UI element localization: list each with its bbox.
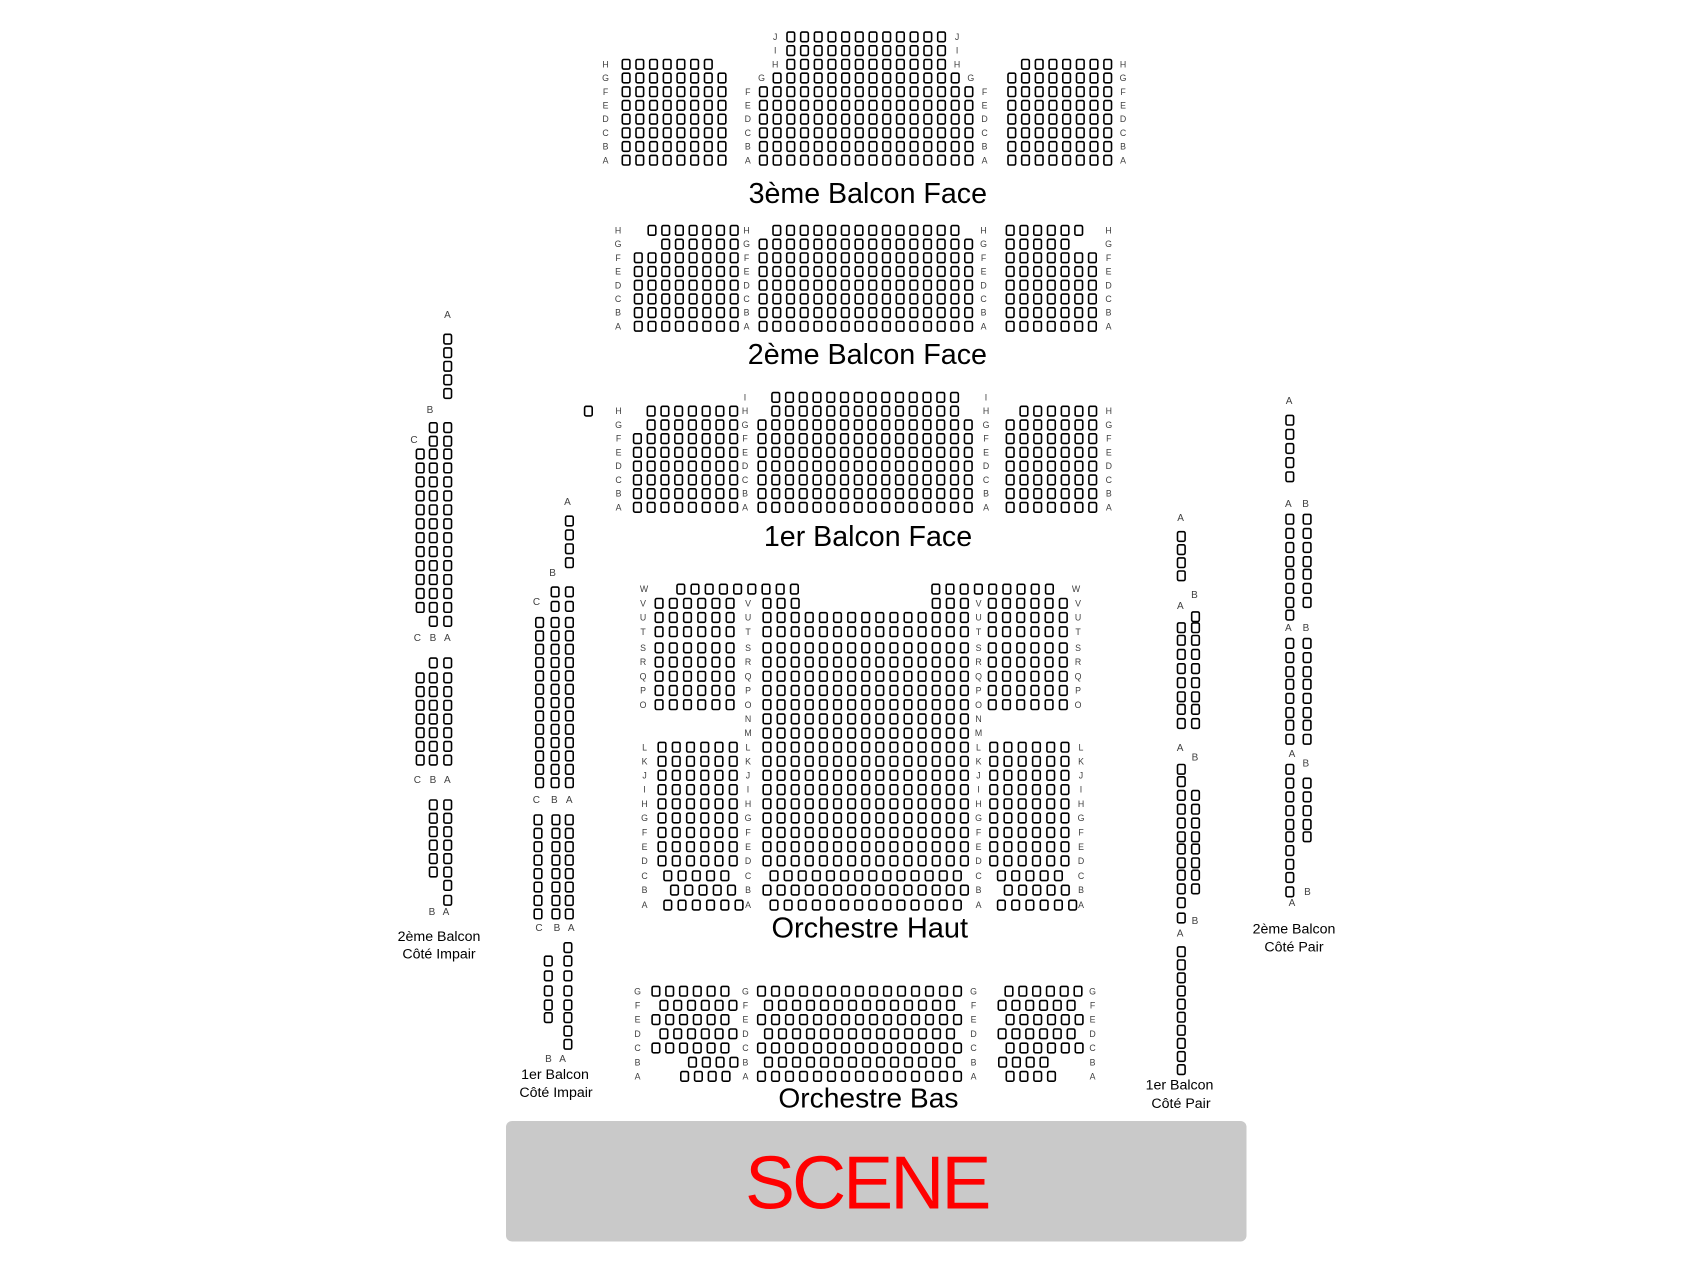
svg-text:A: A xyxy=(444,775,451,786)
svg-text:K: K xyxy=(976,756,982,766)
svg-text:B: B xyxy=(1304,887,1311,898)
svg-text:S: S xyxy=(976,643,982,653)
svg-text:F: F xyxy=(744,253,750,263)
svg-text:A: A xyxy=(1106,321,1112,331)
svg-text:P: P xyxy=(976,686,982,696)
svg-text:B: B xyxy=(545,1054,552,1065)
svg-text:D: D xyxy=(980,280,986,290)
svg-text:B: B xyxy=(745,142,751,152)
svg-text:U: U xyxy=(745,613,751,623)
svg-text:A: A xyxy=(603,155,609,165)
svg-text:C: C xyxy=(745,128,752,138)
svg-text:H: H xyxy=(980,226,986,236)
svg-text:2ème Balcon: 2ème Balcon xyxy=(1253,922,1336,938)
svg-text:N: N xyxy=(975,714,981,724)
svg-text:B: B xyxy=(429,907,436,918)
svg-text:H: H xyxy=(615,226,621,236)
svg-text:I: I xyxy=(643,785,645,795)
svg-text:Q: Q xyxy=(745,671,752,681)
svg-text:G: G xyxy=(970,986,977,996)
svg-text:G: G xyxy=(615,239,622,249)
svg-text:A: A xyxy=(742,503,748,513)
svg-text:C: C xyxy=(1120,128,1127,138)
svg-text:E: E xyxy=(603,101,609,111)
svg-text:J: J xyxy=(976,771,980,781)
svg-text:C: C xyxy=(983,475,990,485)
svg-text:G: G xyxy=(1105,420,1112,430)
svg-text:A: A xyxy=(1177,601,1184,612)
svg-text:A: A xyxy=(1177,928,1184,939)
svg-text:F: F xyxy=(743,1001,749,1011)
svg-text:D: D xyxy=(983,461,989,471)
svg-text:E: E xyxy=(744,267,750,277)
svg-text:A: A xyxy=(1177,513,1184,524)
svg-text:O: O xyxy=(745,700,752,710)
svg-text:F: F xyxy=(745,828,751,838)
svg-text:B: B xyxy=(982,142,988,152)
svg-text:T: T xyxy=(976,627,982,637)
svg-text:B: B xyxy=(554,923,561,934)
svg-text:C: C xyxy=(414,775,421,786)
svg-text:V: V xyxy=(976,598,982,608)
svg-text:E: E xyxy=(982,101,988,111)
svg-text:D: D xyxy=(742,1029,748,1039)
svg-text:B: B xyxy=(744,308,750,318)
svg-text:B: B xyxy=(551,795,558,806)
svg-text:K: K xyxy=(642,756,648,766)
svg-text:Orchestre Haut: Orchestre Haut xyxy=(771,913,968,945)
svg-text:F: F xyxy=(603,87,609,97)
svg-text:D: D xyxy=(745,114,751,124)
svg-text:F: F xyxy=(745,87,751,97)
svg-text:B: B xyxy=(976,885,982,895)
svg-text:E: E xyxy=(983,448,989,458)
svg-text:H: H xyxy=(983,406,989,416)
svg-text:L: L xyxy=(642,742,647,752)
svg-text:D: D xyxy=(634,1029,640,1039)
svg-text:A: A xyxy=(443,907,450,918)
svg-text:B: B xyxy=(549,568,556,579)
svg-text:F: F xyxy=(971,1001,977,1011)
svg-text:Côté Impair: Côté Impair xyxy=(519,1085,593,1101)
svg-text:E: E xyxy=(976,842,982,852)
svg-text:G: G xyxy=(975,813,982,823)
svg-text:L: L xyxy=(746,742,751,752)
svg-text:H: H xyxy=(742,406,748,416)
svg-text:G: G xyxy=(634,986,641,996)
svg-text:S: S xyxy=(640,643,646,653)
svg-text:I: I xyxy=(1080,785,1082,795)
svg-text:H: H xyxy=(975,799,981,809)
svg-text:A: A xyxy=(444,310,451,321)
svg-text:D: D xyxy=(743,280,749,290)
svg-text:G: G xyxy=(983,420,990,430)
svg-text:I: I xyxy=(744,393,746,403)
svg-text:Côté Impair: Côté Impair xyxy=(402,947,476,963)
svg-text:S: S xyxy=(1075,643,1081,653)
svg-text:B: B xyxy=(616,489,622,499)
svg-text:M: M xyxy=(975,728,982,738)
svg-text:F: F xyxy=(1090,1001,1096,1011)
svg-text:G: G xyxy=(1120,73,1127,83)
svg-text:E: E xyxy=(642,842,648,852)
svg-text:D: D xyxy=(1120,114,1126,124)
svg-text:T: T xyxy=(1075,627,1081,637)
svg-text:Q: Q xyxy=(640,671,647,681)
svg-text:D: D xyxy=(975,856,981,866)
svg-text:O: O xyxy=(1075,700,1082,710)
svg-text:E: E xyxy=(742,448,748,458)
svg-text:H: H xyxy=(745,799,751,809)
svg-text:D: D xyxy=(970,1029,976,1039)
svg-text:C: C xyxy=(535,923,542,934)
svg-text:H: H xyxy=(1105,226,1111,236)
svg-text:1er Balcon Face: 1er Balcon Face xyxy=(764,521,972,553)
svg-text:Côté Pair: Côté Pair xyxy=(1151,1096,1210,1112)
svg-text:E: E xyxy=(1120,101,1126,111)
svg-text:E: E xyxy=(615,267,621,277)
svg-text:A: A xyxy=(444,633,451,644)
svg-text:B: B xyxy=(1191,590,1198,601)
svg-text:A: A xyxy=(1289,749,1296,760)
svg-text:C: C xyxy=(970,1043,977,1053)
svg-text:O: O xyxy=(975,700,982,710)
svg-text:B: B xyxy=(745,885,751,895)
svg-text:I: I xyxy=(985,393,987,403)
svg-text:Q: Q xyxy=(1075,671,1082,681)
svg-text:A: A xyxy=(642,900,648,910)
svg-text:B: B xyxy=(1302,499,1309,510)
svg-text:A: A xyxy=(1177,743,1184,754)
svg-text:B: B xyxy=(642,885,648,895)
svg-text:A: A xyxy=(1289,898,1296,909)
svg-text:J: J xyxy=(746,771,750,781)
svg-text:Orchestre Bas: Orchestre Bas xyxy=(778,1082,958,1114)
svg-text:P: P xyxy=(1075,686,1081,696)
svg-text:A: A xyxy=(615,321,621,331)
svg-text:H: H xyxy=(615,406,621,416)
svg-text:B: B xyxy=(1106,489,1112,499)
svg-text:R: R xyxy=(745,657,751,667)
svg-text:A: A xyxy=(559,1054,566,1065)
svg-text:D: D xyxy=(745,856,751,866)
svg-text:G: G xyxy=(758,73,765,83)
svg-text:G: G xyxy=(641,813,648,823)
svg-text:G: G xyxy=(602,73,609,83)
svg-text:F: F xyxy=(982,87,988,97)
svg-text:I: I xyxy=(977,785,979,795)
svg-text:F: F xyxy=(1106,434,1112,444)
svg-text:D: D xyxy=(615,280,621,290)
svg-text:E: E xyxy=(742,1015,748,1025)
svg-text:C: C xyxy=(980,294,987,304)
svg-text:A: A xyxy=(1286,396,1293,407)
svg-text:B: B xyxy=(981,308,987,318)
svg-text:W: W xyxy=(1072,584,1081,594)
svg-text:T: T xyxy=(745,627,751,637)
svg-text:1er Balcon: 1er Balcon xyxy=(1146,1078,1214,1094)
svg-text:B: B xyxy=(742,1057,748,1067)
svg-text:F: F xyxy=(615,253,621,263)
svg-text:E: E xyxy=(745,101,751,111)
svg-text:B: B xyxy=(603,142,609,152)
svg-text:Côté Pair: Côté Pair xyxy=(1264,940,1323,956)
svg-text:U: U xyxy=(640,613,646,623)
svg-text:H: H xyxy=(1120,59,1126,69)
svg-text:B: B xyxy=(1090,1057,1096,1067)
svg-text:G: G xyxy=(745,813,752,823)
svg-text:F: F xyxy=(983,434,989,444)
svg-text:B: B xyxy=(635,1057,641,1067)
svg-text:B: B xyxy=(983,489,989,499)
svg-text:C: C xyxy=(1089,1043,1096,1053)
svg-text:A: A xyxy=(982,155,988,165)
svg-text:C: C xyxy=(615,475,622,485)
svg-text:C: C xyxy=(745,871,752,881)
svg-text:I: I xyxy=(747,785,749,795)
svg-text:C: C xyxy=(1106,475,1113,485)
svg-text:R: R xyxy=(1075,657,1081,667)
svg-text:J: J xyxy=(773,32,777,42)
svg-text:E: E xyxy=(1106,267,1112,277)
svg-text:B: B xyxy=(427,405,434,416)
svg-text:A: A xyxy=(983,503,989,513)
svg-text:J: J xyxy=(955,32,959,42)
svg-text:H: H xyxy=(1078,799,1084,809)
svg-text:B: B xyxy=(971,1057,977,1067)
svg-text:C: C xyxy=(1105,294,1112,304)
svg-text:H: H xyxy=(602,59,608,69)
svg-text:R: R xyxy=(975,657,981,667)
svg-text:B: B xyxy=(1192,753,1199,764)
svg-text:G: G xyxy=(742,420,749,430)
svg-text:A: A xyxy=(568,923,575,934)
svg-text:H: H xyxy=(641,799,647,809)
svg-text:C: C xyxy=(743,294,750,304)
svg-text:A: A xyxy=(1285,499,1292,510)
svg-text:SCENE: SCENE xyxy=(745,1141,988,1225)
svg-text:C: C xyxy=(414,633,421,644)
svg-text:G: G xyxy=(967,73,974,83)
svg-text:A: A xyxy=(745,155,751,165)
svg-text:E: E xyxy=(1106,448,1112,458)
svg-text:F: F xyxy=(1120,87,1126,97)
svg-text:C: C xyxy=(410,435,417,446)
svg-text:A: A xyxy=(566,795,573,806)
svg-text:P: P xyxy=(640,686,646,696)
svg-text:F: F xyxy=(616,434,622,444)
svg-text:V: V xyxy=(640,598,646,608)
svg-text:2ème Balcon Face: 2ème Balcon Face xyxy=(748,339,987,371)
svg-text:C: C xyxy=(641,871,648,881)
svg-text:V: V xyxy=(1075,598,1081,608)
svg-text:B: B xyxy=(430,633,437,644)
svg-text:A: A xyxy=(1120,155,1126,165)
svg-text:2ème Balcon: 2ème Balcon xyxy=(398,929,481,945)
svg-text:F: F xyxy=(1106,253,1112,263)
svg-text:G: G xyxy=(615,420,622,430)
svg-text:B: B xyxy=(1302,758,1309,769)
svg-text:C: C xyxy=(533,795,540,806)
svg-text:A: A xyxy=(1090,1072,1096,1082)
svg-text:A: A xyxy=(1285,623,1292,634)
svg-text:O: O xyxy=(640,700,647,710)
svg-text:I: I xyxy=(956,46,958,56)
svg-text:C: C xyxy=(602,128,609,138)
svg-text:B: B xyxy=(1120,142,1126,152)
svg-text:D: D xyxy=(981,114,987,124)
svg-text:N: N xyxy=(745,714,751,724)
svg-text:A: A xyxy=(742,1072,748,1082)
svg-text:A: A xyxy=(1078,900,1084,910)
svg-text:E: E xyxy=(971,1015,977,1025)
svg-text:B: B xyxy=(742,489,748,499)
svg-text:K: K xyxy=(745,756,751,766)
svg-text:B: B xyxy=(1192,916,1199,927)
svg-text:D: D xyxy=(641,856,647,866)
svg-text:E: E xyxy=(616,448,622,458)
svg-text:V: V xyxy=(745,598,751,608)
svg-text:E: E xyxy=(1090,1015,1096,1025)
svg-text:B: B xyxy=(615,308,621,318)
svg-text:S: S xyxy=(745,643,751,653)
svg-text:C: C xyxy=(742,475,749,485)
svg-text:G: G xyxy=(980,239,987,249)
svg-text:A: A xyxy=(971,1072,977,1082)
svg-text:C: C xyxy=(634,1043,641,1053)
svg-text:K: K xyxy=(1078,756,1084,766)
svg-text:Q: Q xyxy=(975,671,982,681)
svg-text:A: A xyxy=(564,497,571,508)
svg-text:1er Balcon: 1er Balcon xyxy=(521,1067,589,1083)
svg-text:E: E xyxy=(981,267,987,277)
svg-text:C: C xyxy=(533,597,540,608)
svg-text:L: L xyxy=(1079,742,1084,752)
svg-text:U: U xyxy=(1075,613,1081,623)
svg-text:C: C xyxy=(975,871,982,881)
svg-text:I: I xyxy=(774,46,776,56)
svg-text:L: L xyxy=(976,742,981,752)
svg-text:H: H xyxy=(743,226,749,236)
svg-text:A: A xyxy=(744,321,750,331)
svg-text:F: F xyxy=(976,828,982,838)
svg-text:A: A xyxy=(616,503,622,513)
svg-text:D: D xyxy=(1105,280,1111,290)
svg-text:R: R xyxy=(640,657,646,667)
svg-text:B: B xyxy=(1106,308,1112,318)
svg-text:G: G xyxy=(743,239,750,249)
svg-text:E: E xyxy=(745,842,751,852)
svg-text:G: G xyxy=(742,986,749,996)
svg-text:C: C xyxy=(1078,871,1085,881)
svg-text:A: A xyxy=(635,1072,641,1082)
svg-text:3ème Balcon Face: 3ème Balcon Face xyxy=(749,178,987,210)
svg-text:B: B xyxy=(1303,623,1310,634)
svg-text:A: A xyxy=(1106,503,1112,513)
svg-text:D: D xyxy=(1106,461,1112,471)
svg-text:G: G xyxy=(1078,813,1085,823)
svg-text:D: D xyxy=(742,461,748,471)
svg-text:A: A xyxy=(976,900,982,910)
svg-text:B: B xyxy=(430,775,437,786)
svg-text:U: U xyxy=(975,613,981,623)
svg-text:F: F xyxy=(981,253,987,263)
svg-text:D: D xyxy=(1089,1029,1095,1039)
svg-text:C: C xyxy=(742,1043,749,1053)
svg-text:P: P xyxy=(745,686,751,696)
svg-text:H: H xyxy=(772,59,778,69)
svg-text:J: J xyxy=(642,771,646,781)
svg-text:A: A xyxy=(745,900,751,910)
svg-text:F: F xyxy=(1078,828,1084,838)
svg-text:H: H xyxy=(1106,406,1112,416)
svg-text:D: D xyxy=(1078,856,1084,866)
svg-text:D: D xyxy=(602,114,608,124)
svg-text:C: C xyxy=(615,294,622,304)
svg-text:C: C xyxy=(981,128,988,138)
svg-text:F: F xyxy=(742,434,748,444)
svg-text:G: G xyxy=(1089,986,1096,996)
svg-text:G: G xyxy=(1105,239,1112,249)
svg-text:J: J xyxy=(1079,771,1083,781)
svg-text:H: H xyxy=(954,59,960,69)
svg-text:F: F xyxy=(642,828,648,838)
svg-text:D: D xyxy=(615,461,621,471)
svg-text:A: A xyxy=(981,321,987,331)
svg-text:M: M xyxy=(744,728,751,738)
svg-text:E: E xyxy=(635,1015,641,1025)
svg-text:E: E xyxy=(1078,842,1084,852)
svg-text:B: B xyxy=(1078,885,1084,895)
svg-text:F: F xyxy=(635,1001,641,1011)
svg-text:W: W xyxy=(640,584,649,594)
svg-text:T: T xyxy=(640,627,646,637)
